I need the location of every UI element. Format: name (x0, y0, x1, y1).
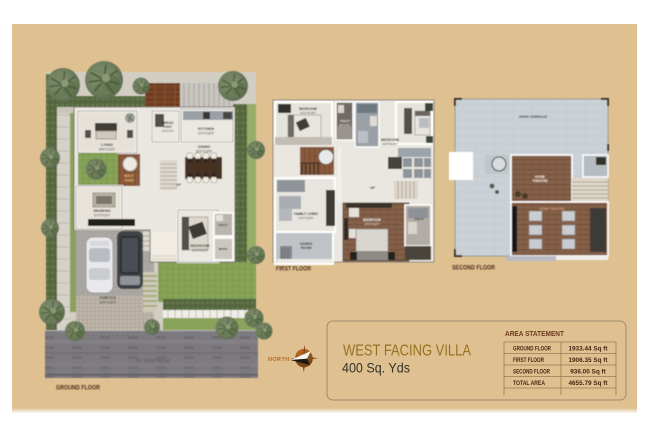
svg-text:4655.79 Sq ft: 4655.79 Sq ft (568, 380, 608, 387)
svg-text:1933.44 Sq ft: 1933.44 Sq ft (568, 346, 608, 353)
svg-text:WEST FACING VILLA: WEST FACING VILLA (343, 343, 472, 360)
svg-text:8'0"X5'0": 8'0"X5'0" (340, 123, 351, 127)
svg-text:DRAWING: DRAWING (93, 209, 111, 213)
svg-text:THEATRE: THEATRE (532, 179, 548, 183)
svg-text:FIRST FLOOR: FIRST FLOOR (276, 266, 311, 273)
svg-text:BEDROOM: BEDROOM (191, 244, 210, 248)
svg-text:GROUND FLOOR: GROUND FLOOR (513, 346, 551, 353)
svg-text:FIRST FLOOR: FIRST FLOOR (513, 357, 544, 364)
svg-text:OVEN: OVEN (124, 178, 134, 182)
svg-text:UP: UP (176, 183, 182, 187)
svg-text:11'0"X13'0": 11'0"X13'0" (94, 213, 111, 217)
svg-text:16'6"X13'0": 16'6"X13'0" (99, 147, 117, 151)
svg-text:400 Sq. Yds: 400 Sq. Yds (342, 360, 410, 376)
svg-text:5'0"X7'0": 5'0"X7'0" (162, 129, 174, 133)
svg-text:ROOM: ROOM (301, 246, 312, 250)
svg-text:DINING: DINING (198, 145, 211, 149)
svg-text:LIVING: LIVING (101, 143, 113, 147)
svg-text:OPEN TERRACE: OPEN TERRACE (519, 115, 548, 119)
svg-text:11'6"X12'0": 11'6"X12'0" (192, 248, 209, 252)
svg-text:TOILET: TOILET (218, 223, 228, 227)
svg-text:1906.35 Sq ft: 1906.35 Sq ft (568, 357, 608, 364)
svg-text:HOME THEATRE: HOME THEATRE (539, 207, 564, 211)
svg-text:BUILT: BUILT (124, 174, 135, 178)
svg-text:UP: UP (370, 186, 376, 190)
svg-text:WASH: WASH (219, 247, 228, 251)
svg-text:TOTAL AREA: TOTAL AREA (513, 380, 545, 387)
svg-text:SECOND FLOOR: SECOND FLOOR (452, 265, 495, 272)
svg-text:NORTH: NORTH (268, 357, 290, 363)
svg-text:AREA STATEMENT: AREA STATEMENT (505, 329, 564, 338)
svg-text:12'2"X10'0": 12'2"X10'0" (298, 216, 314, 220)
svg-text:PORTICO: PORTICO (100, 296, 117, 300)
svg-text:12'0"X12'0": 12'0"X12'0" (382, 142, 398, 146)
svg-text:40' WIDE ROAD: 40' WIDE ROAD (136, 358, 171, 363)
svg-text:16'0"X18'0": 16'0"X18'0" (99, 301, 117, 305)
svg-text:TOILET: TOILET (414, 217, 424, 221)
svg-text:GROUND FLOOR: GROUND FLOOR (56, 385, 100, 392)
svg-text:KITCHEN: KITCHEN (198, 127, 214, 131)
svg-text:TOILET: TOILET (340, 119, 350, 123)
svg-text:14'0"X12'0": 14'0"X12'0" (364, 222, 380, 226)
svg-text:12'2"X10'0": 12'2"X10'0" (198, 131, 216, 135)
svg-text:12'2"X13'6": 12'2"X13'6" (300, 111, 316, 115)
svg-text:SECOND FLOOR: SECOND FLOOR (513, 369, 550, 376)
svg-text:936.00 Sq ft: 936.00 Sq ft (570, 369, 606, 376)
